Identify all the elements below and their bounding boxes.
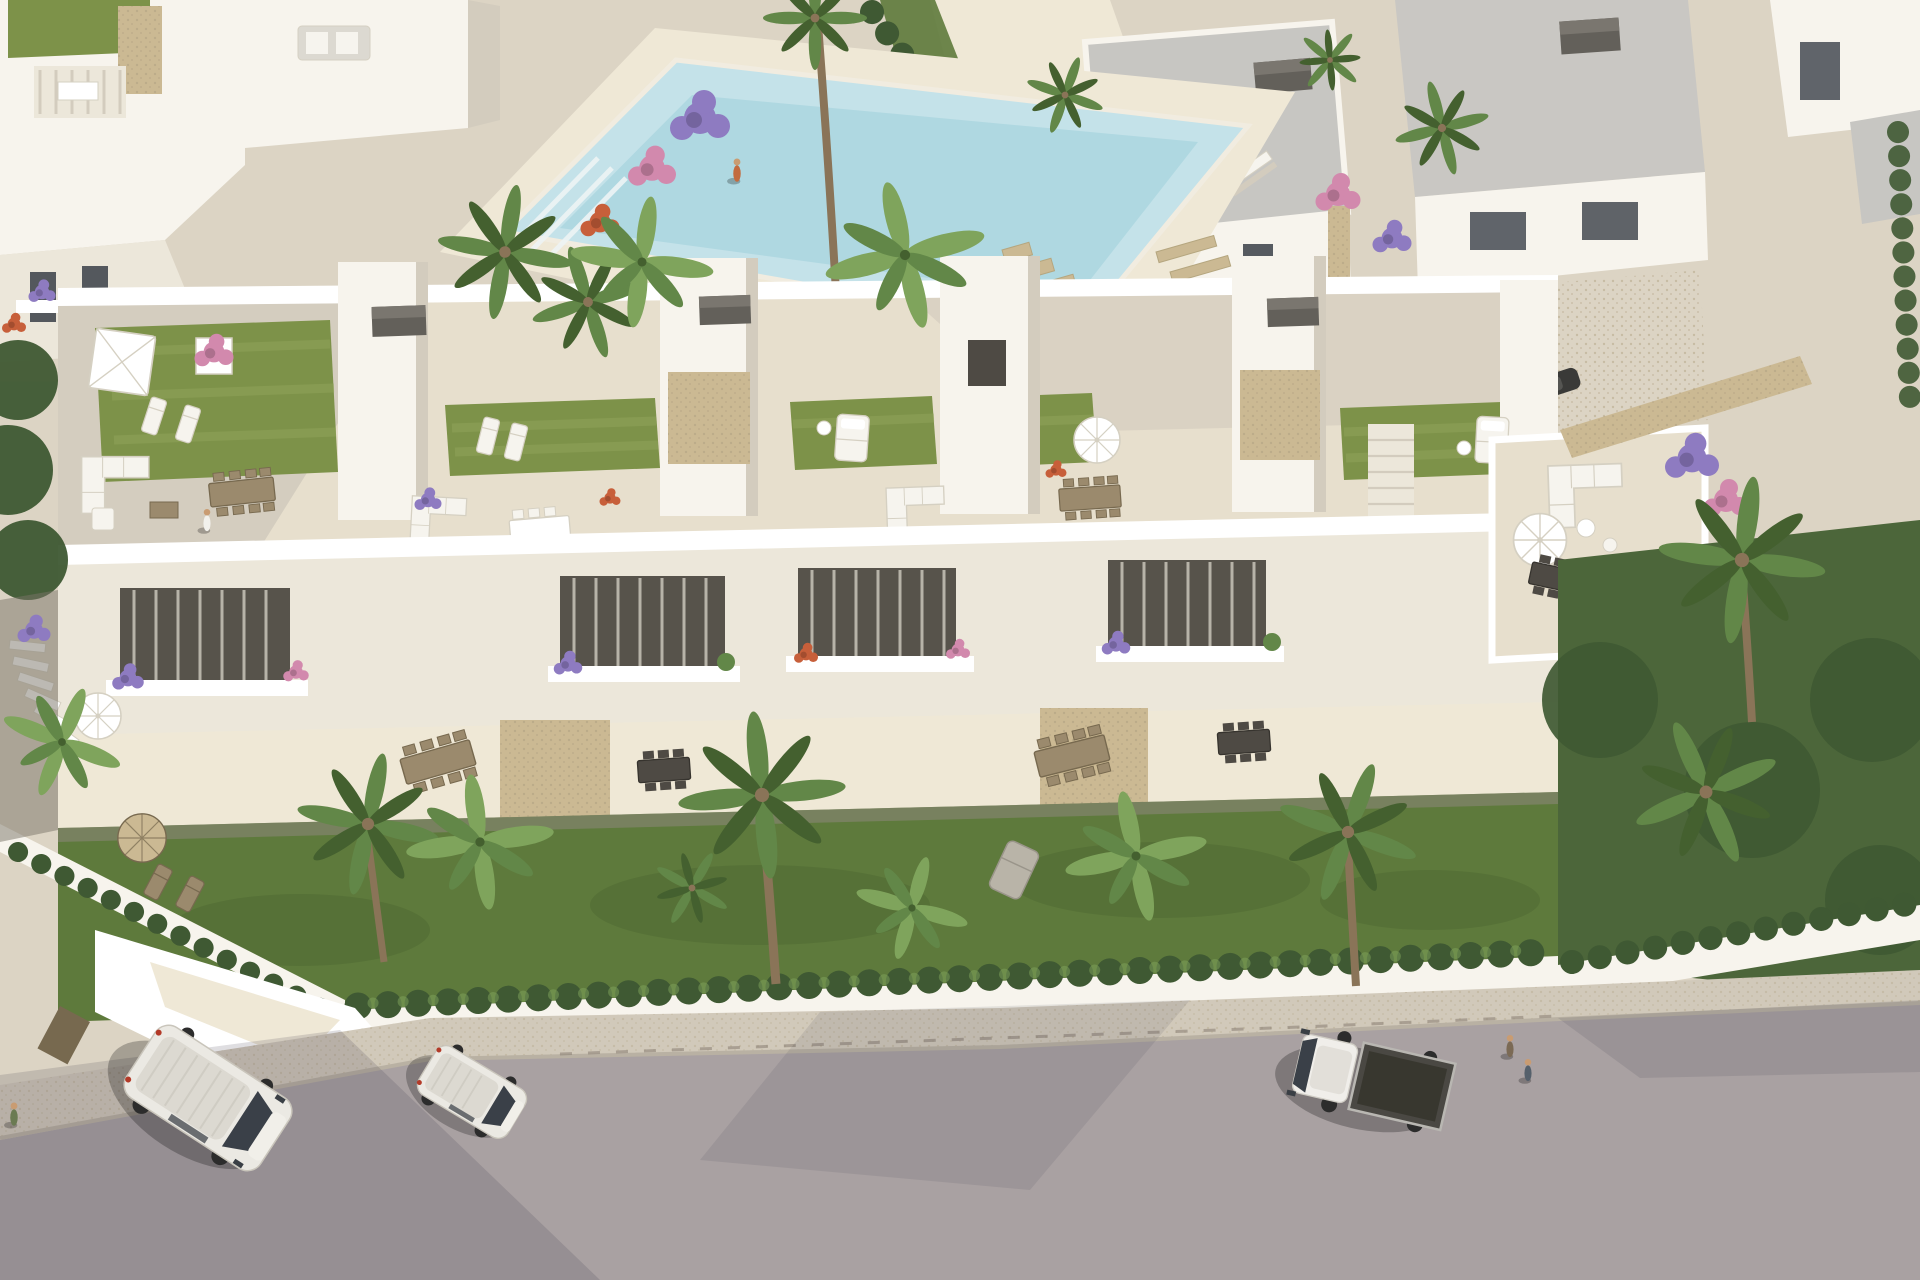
balcony-bay	[106, 588, 309, 696]
roof-sofa-set	[298, 26, 370, 60]
villa-window	[1800, 42, 1840, 100]
main-building	[9, 256, 1705, 835]
outdoor-table	[58, 82, 98, 100]
round-stool	[1603, 538, 1617, 552]
balcony-bay	[786, 568, 974, 672]
villa-roof	[245, 0, 468, 148]
coffee-table	[150, 502, 178, 518]
round-table	[1577, 519, 1595, 537]
balcony-plant	[717, 653, 735, 671]
scene	[0, 0, 1920, 1280]
balcony-bay	[1096, 560, 1284, 662]
villa-wall-shade	[468, 0, 500, 128]
armchair	[92, 508, 114, 530]
garden-parasol-tan	[118, 814, 166, 862]
roof-storage-box	[699, 295, 751, 325]
bbq-unit	[968, 340, 1006, 386]
villa-roof	[1395, 0, 1705, 197]
side-stool	[1457, 441, 1471, 455]
day-bed	[834, 414, 869, 462]
balcony-plant	[1263, 633, 1281, 651]
roof-storage-box	[371, 305, 426, 337]
square-parasol	[88, 328, 156, 396]
roof-storage-box	[1267, 297, 1319, 327]
spoked-parasol	[1074, 417, 1120, 463]
balcony-bay	[548, 576, 740, 682]
rooftop-unit	[1559, 17, 1621, 54]
aerial-render	[0, 0, 1920, 1280]
pergola-terrace	[34, 66, 126, 118]
side-stool	[817, 421, 831, 435]
